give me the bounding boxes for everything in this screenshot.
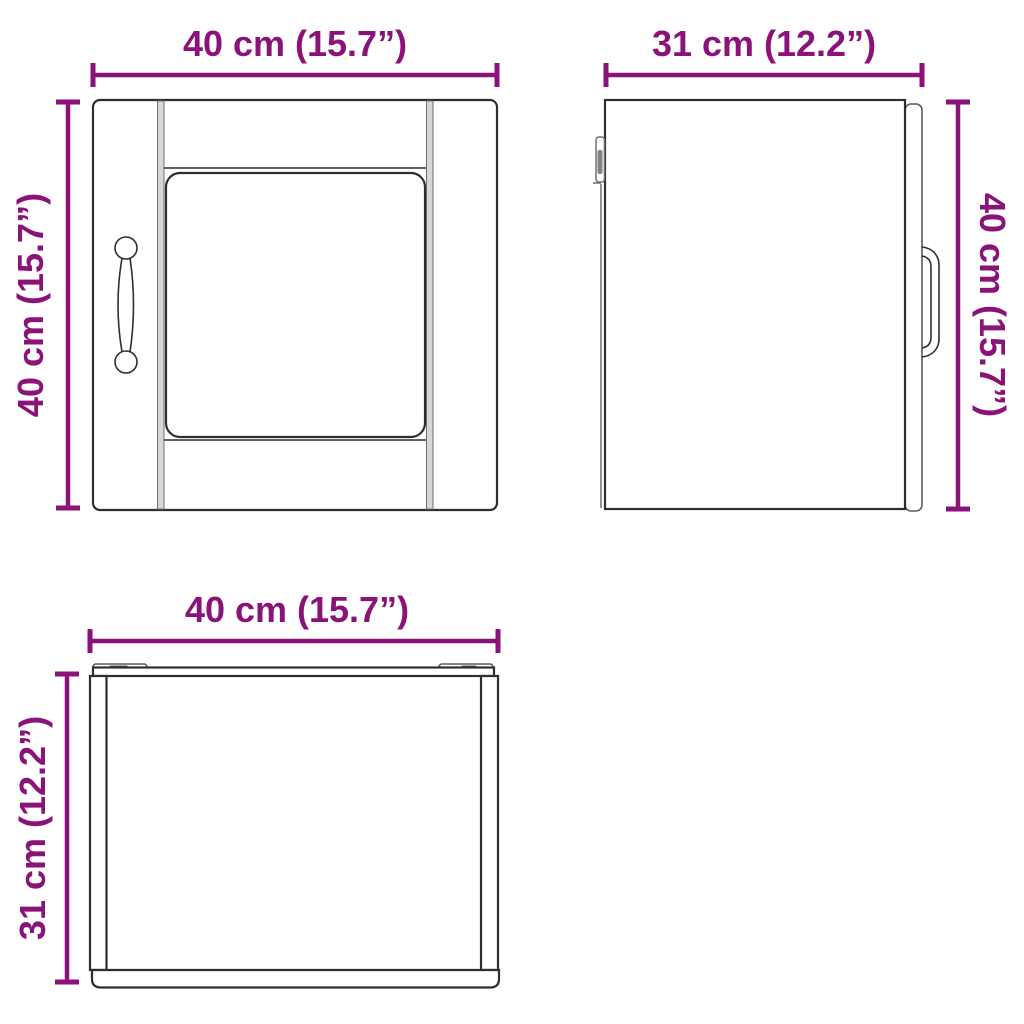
door-front-strip bbox=[93, 668, 494, 677]
side-height-dimension: 40 cm (15.7”) bbox=[946, 102, 1013, 509]
dimension-diagram: 40 cm (15.7”) 40 cm (15.7”) bbox=[0, 0, 1024, 1024]
side-body-drawing bbox=[593, 100, 939, 511]
front-height-label: 40 cm (15.7”) bbox=[10, 193, 51, 417]
cabinet-body-outline bbox=[605, 100, 905, 509]
left-side-wall bbox=[90, 676, 107, 970]
front-height-dimension: 40 cm (15.7”) bbox=[10, 102, 80, 508]
door-edge-profile bbox=[905, 104, 922, 511]
side-width-label: 31 cm (12.2”) bbox=[652, 23, 876, 64]
bottom-view: 40 cm (15.7”) 31 cm (12.2”) bbox=[12, 589, 499, 988]
front-width-label: 40 cm (15.7”) bbox=[183, 23, 407, 64]
front-door-drawing bbox=[93, 100, 497, 510]
right-side-wall bbox=[481, 676, 498, 970]
hinge-plate-detail bbox=[598, 150, 603, 174]
back-rail bbox=[92, 970, 499, 988]
front-view: 40 cm (15.7”) 40 cm (15.7”) bbox=[10, 23, 497, 510]
side-view: 31 cm (12.2”) 40 cm (15.7”) bbox=[593, 23, 1013, 511]
bottom-width-label: 40 cm (15.7”) bbox=[185, 589, 409, 630]
bottom-depth-dimension: 31 cm (12.2”) bbox=[12, 674, 79, 982]
side-handle-profile bbox=[922, 247, 939, 357]
side-width-dimension: 31 cm (12.2”) bbox=[606, 23, 922, 87]
glass-panel bbox=[166, 173, 425, 437]
bottom-body-drawing bbox=[90, 664, 499, 988]
side-height-label: 40 cm (15.7”) bbox=[972, 193, 1013, 417]
door-left-stile bbox=[158, 101, 165, 509]
bottom-depth-label: 31 cm (12.2”) bbox=[12, 716, 53, 940]
front-width-dimension: 40 cm (15.7”) bbox=[93, 23, 497, 87]
door-right-stile bbox=[427, 101, 434, 509]
bottom-width-dimension: 40 cm (15.7”) bbox=[90, 589, 498, 653]
hinge-plate bbox=[596, 137, 605, 182]
handle-profile-inner bbox=[922, 256, 931, 348]
